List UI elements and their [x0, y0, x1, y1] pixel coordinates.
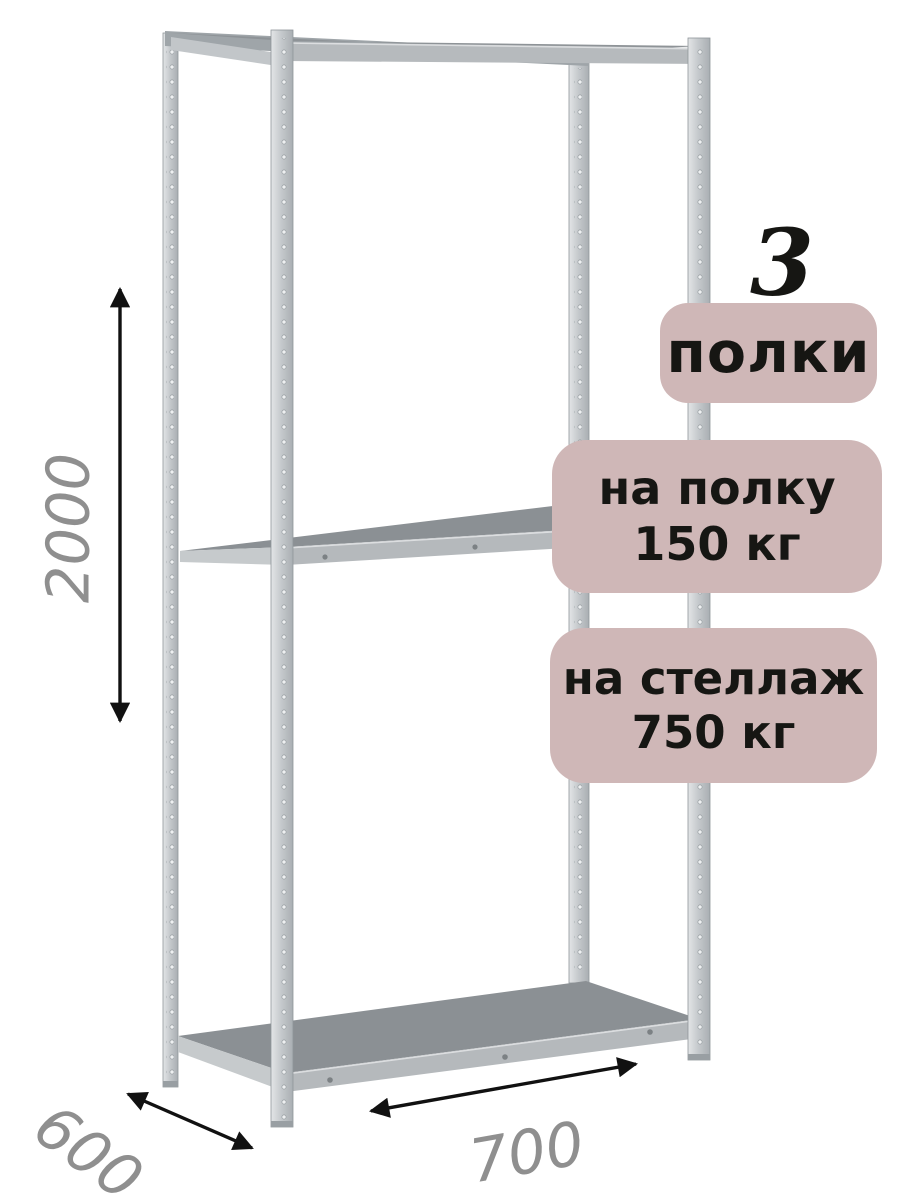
shelf-count-label: полки — [667, 320, 871, 386]
shelf-count-badge: полки — [660, 303, 877, 403]
rack-post-back-left — [163, 33, 178, 1087]
per-shelf-load-badge: на полку 150 кг — [552, 440, 882, 593]
shelf-count-number: 3 — [750, 216, 814, 308]
per-rack-load-label: на стеллаж — [563, 652, 864, 706]
rack-post-front-left — [271, 30, 293, 1127]
per-shelf-load-label: на полку — [598, 461, 835, 516]
per-shelf-load-value: 150 кг — [633, 517, 800, 572]
height-dimension-label: 2000 — [39, 453, 98, 603]
shelving-rack-illustration — [0, 0, 900, 1200]
depth-dimension-arrow-icon — [128, 1094, 252, 1148]
per-rack-load-value: 750 кг — [632, 706, 796, 760]
rack-bottom-shelf — [178, 981, 699, 1092]
product-image: 3 полки на полку 150 кг на стеллаж 750 к… — [0, 0, 900, 1200]
rack-top-shelf — [165, 31, 708, 67]
width-dimension-label: 700 — [465, 1114, 588, 1193]
per-rack-load-badge: на стеллаж 750 кг — [550, 628, 877, 783]
